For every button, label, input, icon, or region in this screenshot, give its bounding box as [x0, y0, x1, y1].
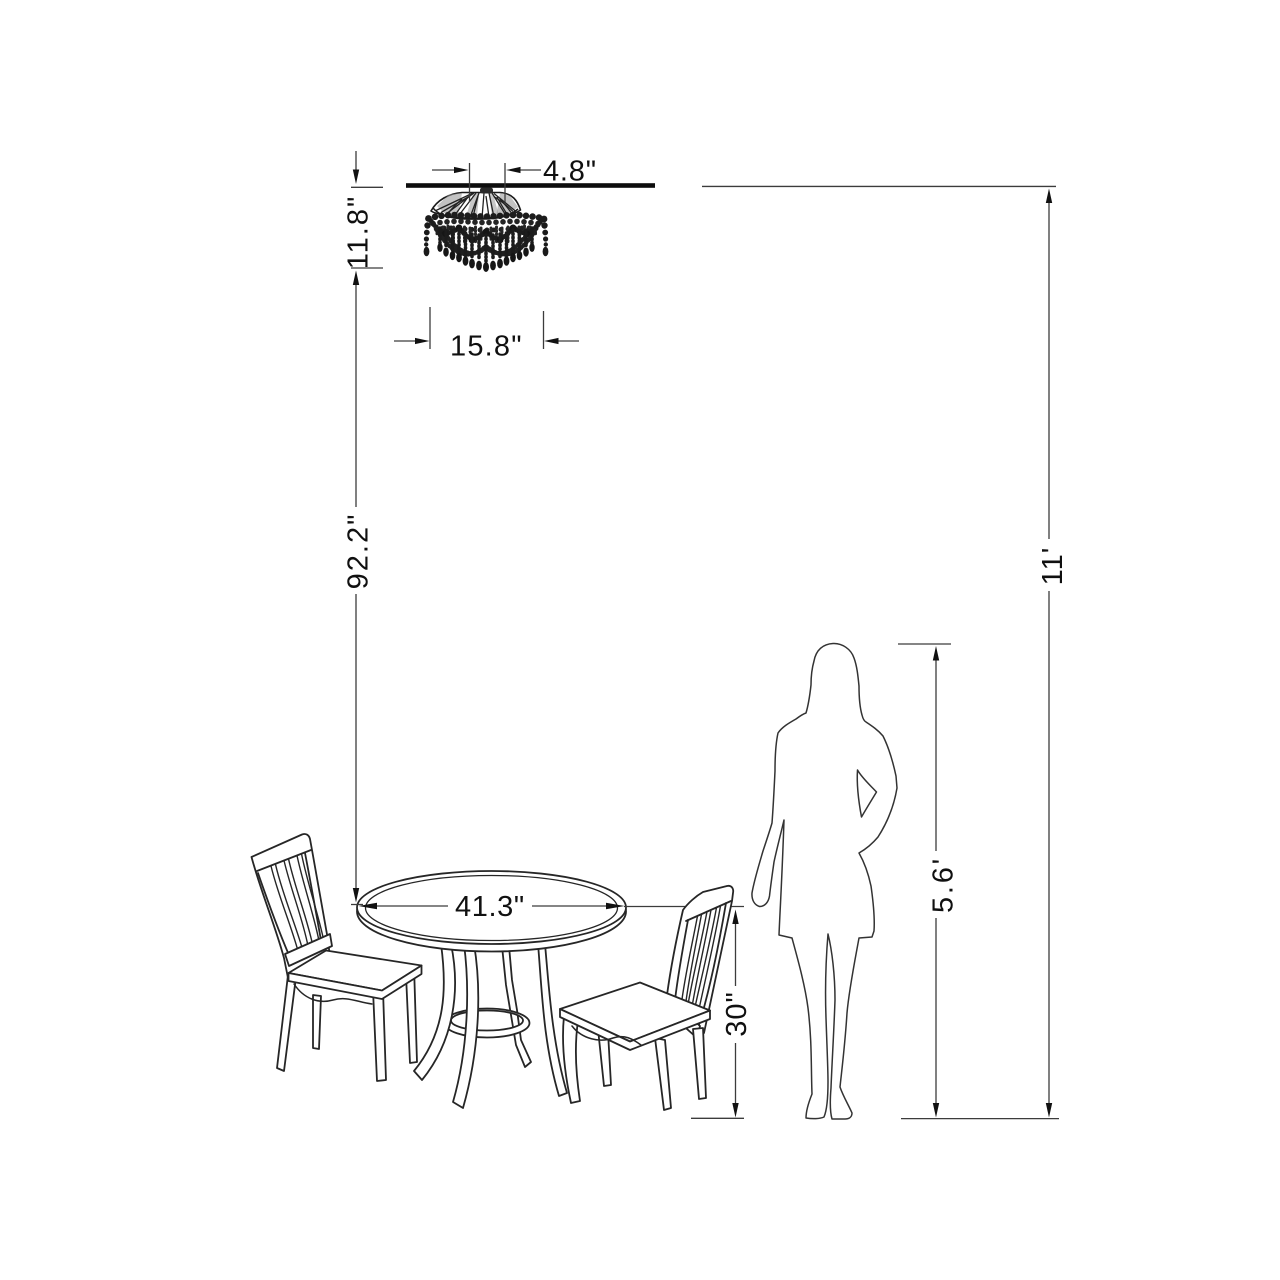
svg-text:5.6': 5.6'	[928, 856, 960, 913]
svg-text:41.3": 41.3"	[455, 891, 525, 923]
svg-text:4.8": 4.8"	[543, 156, 597, 188]
svg-text:11': 11'	[1037, 547, 1069, 586]
svg-text:15.8": 15.8"	[450, 331, 523, 363]
svg-text:11.8": 11.8"	[343, 195, 375, 270]
svg-text:92.2": 92.2"	[343, 513, 375, 590]
svg-text:30": 30"	[721, 991, 753, 1037]
